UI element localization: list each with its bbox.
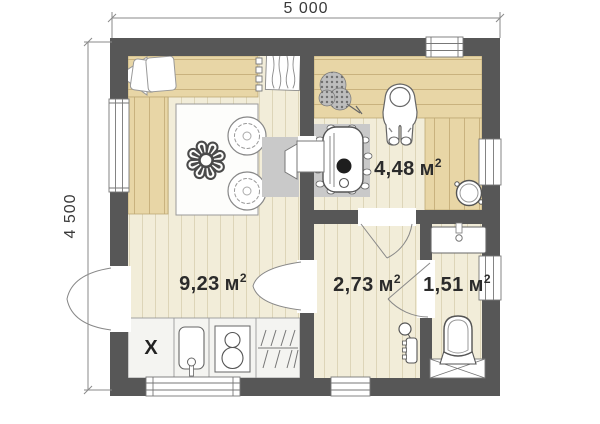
sauna-stove [323,127,363,192]
dimension-width-label: 5 000 [283,1,328,17]
stool [228,117,266,155]
window-sauna-right [479,139,501,185]
room-area-value: 2,73 [333,274,374,296]
appliance-spot-marker: X [144,338,157,358]
towels [265,52,300,90]
window-kitchen-bottom [146,377,240,396]
window-left [109,99,129,192]
room-area-value: 9,23 [179,273,220,295]
room-label-living: 9,23м2 [179,272,247,294]
room-area-unit: м [469,274,484,296]
stool [228,172,266,210]
room-area-sup: 2 [240,271,247,285]
window-shower-bottom [331,377,370,396]
toilet-sink [431,223,486,253]
bed-bench [128,97,168,214]
room-label-toilet: 1,51м2 [423,273,491,295]
room-area-sup: 2 [394,272,401,286]
window-sauna-top [426,37,463,57]
room-area-unit: м [225,273,240,295]
room-label-shower: 2,73м2 [333,273,401,295]
pillow [146,56,177,92]
room-area-sup: 2 [435,156,442,170]
room-area-value: 4,48 [374,158,415,180]
kitchen-hob [215,326,250,372]
dimension-height-label: 4 500 [63,193,79,238]
floor-plan: ❁ [0,0,600,424]
floor-plan-drawing: ❁ [0,0,600,424]
room-area-unit: м [420,158,435,180]
room-area-unit: м [379,274,394,296]
room-label-sauna: 4,48м2 [374,157,442,179]
kitchen-sink [179,327,204,376]
sauna-shower-opening [358,208,416,226]
entrance-door [67,268,111,330]
toilet [440,316,476,364]
room-area-value: 1,51 [423,274,464,296]
room-area-sup: 2 [484,272,491,286]
